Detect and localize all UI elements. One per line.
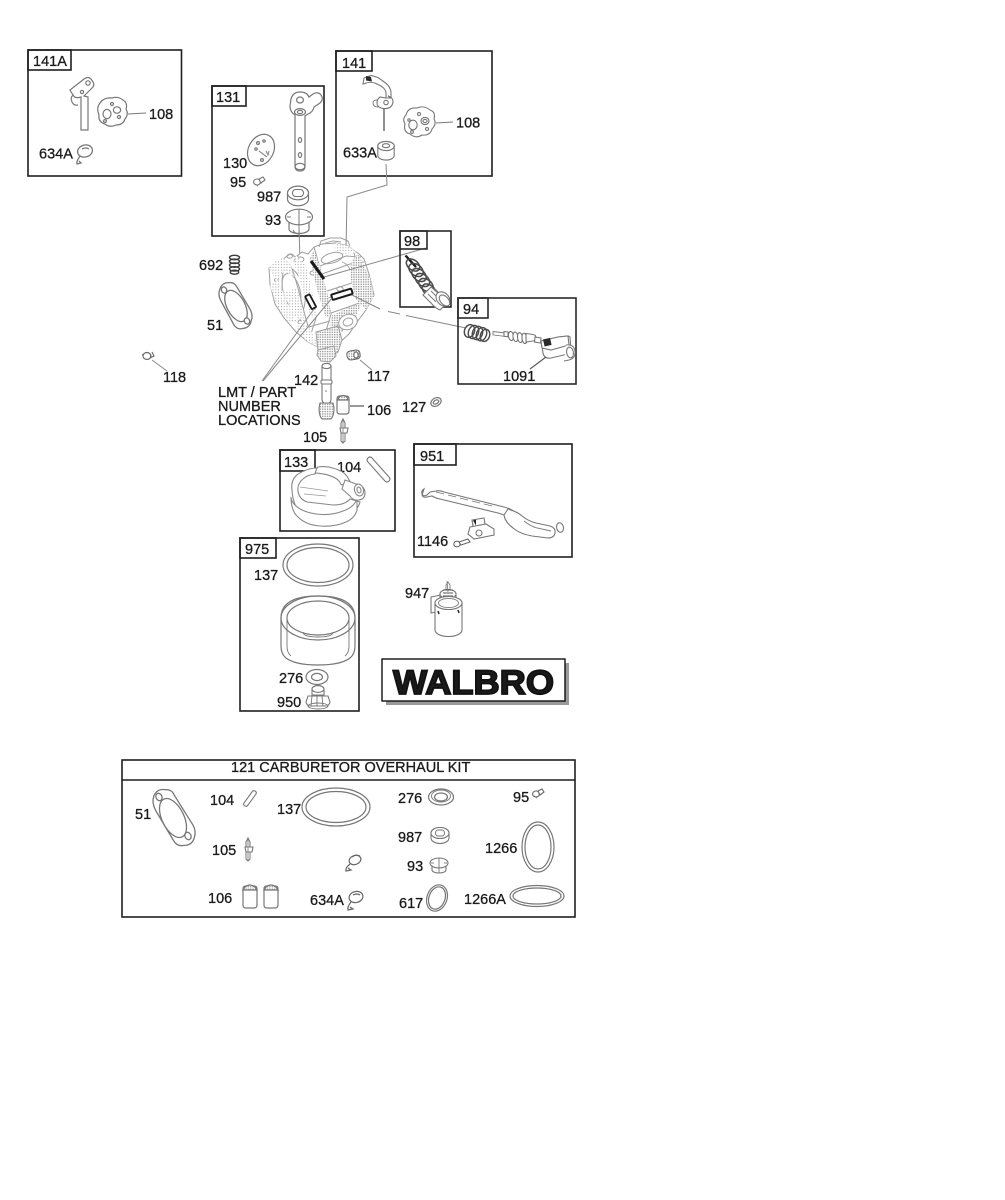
svg-text:LOCATIONS: LOCATIONS xyxy=(218,413,301,429)
svg-text:130: 130 xyxy=(223,156,247,172)
svg-text:987: 987 xyxy=(398,830,422,846)
svg-text:1146: 1146 xyxy=(417,534,448,550)
svg-text:WALBRO: WALBRO xyxy=(393,664,554,702)
svg-text:276: 276 xyxy=(398,791,422,807)
svg-text:634A: 634A xyxy=(310,893,344,909)
svg-text:141A: 141A xyxy=(33,54,67,70)
svg-text:975: 975 xyxy=(245,542,269,558)
svg-text:1091: 1091 xyxy=(503,369,535,385)
svg-text:95: 95 xyxy=(513,790,529,806)
svg-text:121 CARBURETOR OVERHAUL KIT: 121 CARBURETOR OVERHAUL KIT xyxy=(231,760,470,776)
svg-text:633A: 633A xyxy=(343,146,377,162)
svg-text:131: 131 xyxy=(216,90,240,106)
svg-text:118: 118 xyxy=(163,370,186,386)
svg-text:1266A: 1266A xyxy=(464,892,506,908)
svg-text:692: 692 xyxy=(199,258,223,274)
svg-text:108: 108 xyxy=(149,107,173,123)
svg-text:98: 98 xyxy=(404,234,420,250)
svg-text:105: 105 xyxy=(303,430,327,446)
svg-text:117: 117 xyxy=(367,369,390,385)
svg-text:137: 137 xyxy=(277,802,301,818)
svg-text:137: 137 xyxy=(254,568,278,584)
svg-text:141: 141 xyxy=(342,56,366,72)
svg-text:276: 276 xyxy=(279,671,303,687)
svg-text:93: 93 xyxy=(265,213,281,229)
svg-text:105: 105 xyxy=(212,843,236,859)
svg-text:617: 617 xyxy=(399,896,423,912)
svg-text:51: 51 xyxy=(207,318,223,334)
svg-text:634A: 634A xyxy=(39,147,73,163)
svg-text:51: 51 xyxy=(135,807,151,823)
svg-text:94: 94 xyxy=(463,302,479,318)
svg-text:950: 950 xyxy=(277,695,301,711)
svg-text:108: 108 xyxy=(456,116,480,132)
svg-text:133: 133 xyxy=(284,455,308,471)
svg-text:951: 951 xyxy=(420,449,444,465)
svg-text:106: 106 xyxy=(367,403,391,419)
svg-text:127: 127 xyxy=(402,400,426,416)
svg-text:104: 104 xyxy=(210,793,234,809)
svg-text:142: 142 xyxy=(294,373,318,389)
svg-text:987: 987 xyxy=(257,190,281,206)
svg-text:95: 95 xyxy=(230,175,246,191)
svg-text:1266: 1266 xyxy=(485,841,517,857)
svg-text:947: 947 xyxy=(405,586,429,602)
svg-text:106: 106 xyxy=(208,891,232,907)
svg-text:93: 93 xyxy=(407,859,423,875)
